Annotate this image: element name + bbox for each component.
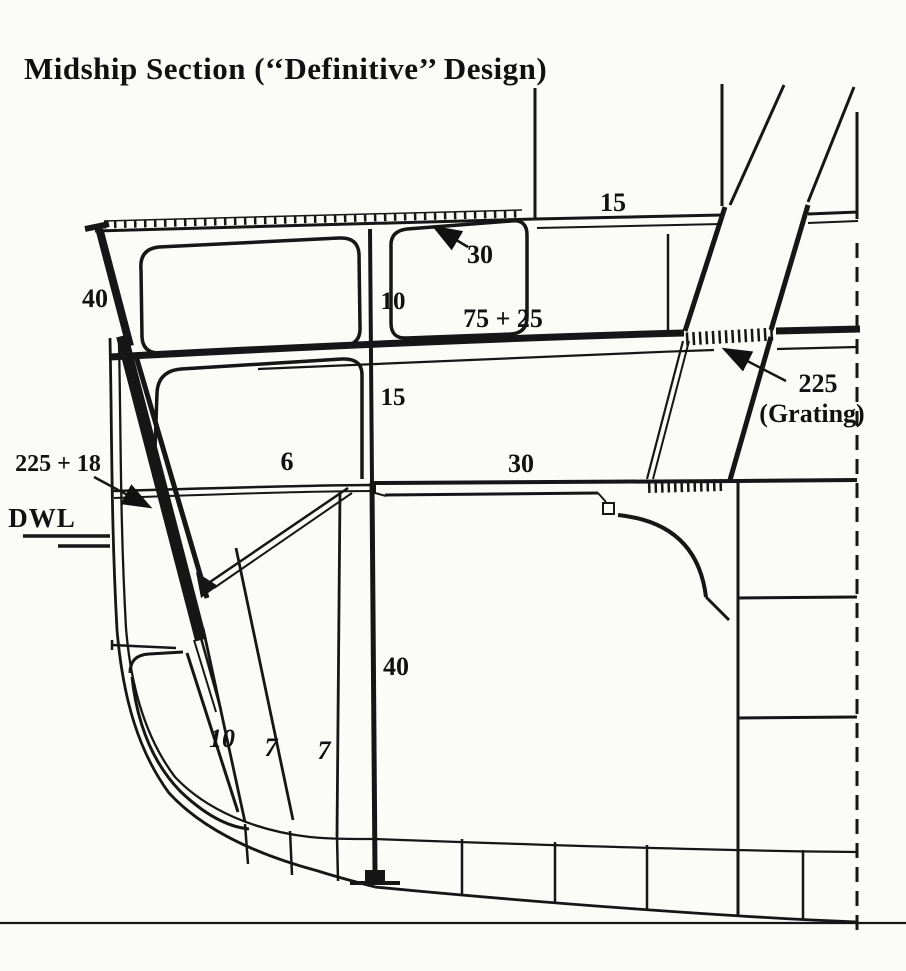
- label-top-deck: 15: [600, 188, 626, 217]
- waterline-marks: [23, 536, 110, 546]
- shelter-deck: [85, 210, 858, 231]
- label-waterline: DWL: [8, 503, 76, 533]
- dimension-labels: 15 30 40 10 75 + 25 15 225 (Grating) 225…: [8, 188, 864, 765]
- wing-compartment-grid: [738, 483, 857, 848]
- label-lower-bulkhead: 40: [383, 652, 409, 681]
- arrow-top-plating: [436, 228, 468, 247]
- label-splinter-1: 7: [265, 733, 279, 762]
- label-armored-deck: 75 + 25: [463, 304, 543, 333]
- wing-bulkheads: [112, 491, 340, 836]
- label-middle-deck-inner: 6: [281, 447, 294, 476]
- superstructure-lines: [535, 84, 857, 219]
- midship-section-diagram: 15 30 40 10 75 + 25 15 225 (Grating) 225…: [0, 0, 906, 971]
- label-grating-value: 225: [799, 369, 838, 398]
- arrow-grating: [726, 350, 786, 381]
- label-grating-note: (Grating): [759, 399, 864, 428]
- label-splinter-2: 7: [318, 736, 332, 765]
- label-upper-side: 10: [381, 288, 406, 315]
- label-top-plating: 30: [467, 240, 493, 269]
- label-middle-deck: 30: [508, 449, 534, 478]
- armor-belt: [122, 336, 221, 712]
- tween-deck-frames: [141, 221, 668, 479]
- label-sheer-strake: 40: [82, 284, 108, 313]
- label-mid-side: 15: [381, 384, 406, 411]
- label-holding-bulkhead: 10: [209, 724, 235, 753]
- label-main-belt: 225 + 18: [15, 451, 101, 477]
- diagonal-strut: [210, 488, 352, 588]
